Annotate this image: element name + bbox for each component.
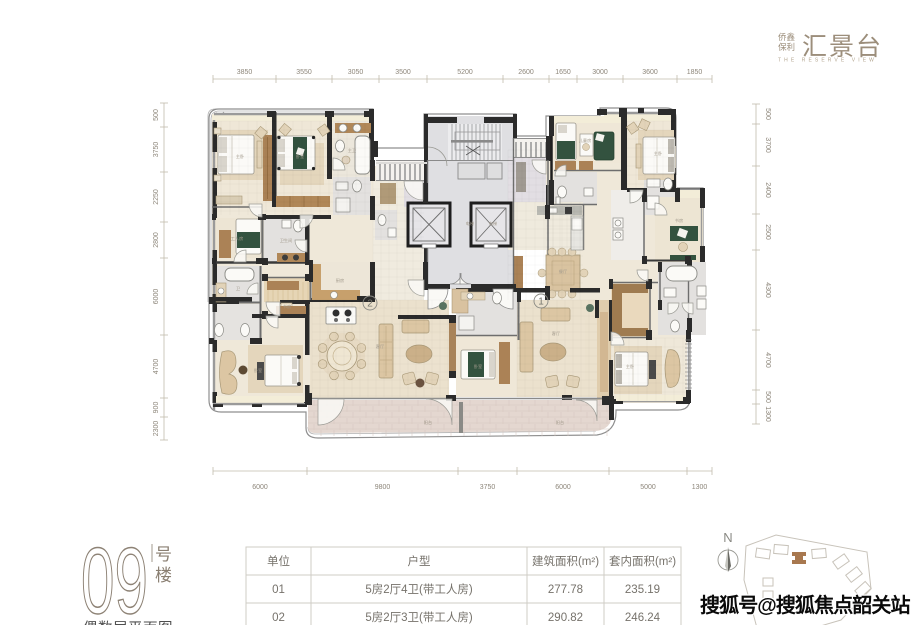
- svg-text:偶数层平面图: 偶数层平面图: [83, 620, 173, 625]
- svg-text:500: 500: [153, 109, 160, 121]
- svg-text:3500: 3500: [395, 69, 411, 76]
- svg-text:500: 500: [764, 391, 771, 403]
- svg-text:2400: 2400: [764, 182, 771, 198]
- svg-text:5200: 5200: [457, 69, 473, 76]
- svg-text:500: 500: [764, 108, 771, 120]
- svg-text:3850: 3850: [237, 69, 253, 76]
- svg-text:1300: 1300: [764, 406, 771, 422]
- svg-text:2600: 2600: [518, 69, 534, 76]
- svg-text:900: 900: [153, 402, 160, 414]
- svg-text:楼: 楼: [155, 566, 172, 585]
- svg-text:6000: 6000: [252, 484, 268, 491]
- svg-text:5000: 5000: [640, 484, 656, 491]
- svg-text:儿童房: 儿童房: [579, 137, 592, 144]
- svg-text:书房: 书房: [675, 217, 683, 224]
- svg-text:277.78: 277.78: [548, 584, 583, 596]
- svg-text:2800: 2800: [153, 232, 160, 248]
- svg-text:246.24: 246.24: [625, 612, 661, 624]
- svg-text:阳台: 阳台: [556, 419, 564, 426]
- svg-text:2: 2: [367, 299, 373, 310]
- svg-text:电梯: 电梯: [489, 220, 497, 227]
- svg-text:3700: 3700: [764, 137, 771, 153]
- svg-text:3550: 3550: [296, 69, 312, 76]
- svg-text:01: 01: [272, 584, 285, 596]
- svg-text:3600: 3600: [642, 69, 658, 76]
- svg-text:1300: 1300: [692, 484, 708, 491]
- svg-text:5房2厅4卫(带工人房): 5房2厅4卫(带工人房): [365, 583, 473, 596]
- svg-text:建筑面积(m²): 建筑面积(m²): [532, 554, 599, 568]
- svg-text:290.82: 290.82: [548, 612, 583, 624]
- svg-text:主卫: 主卫: [348, 147, 356, 153]
- svg-text:厨房: 厨房: [336, 277, 344, 284]
- svg-text:书房: 书房: [283, 303, 291, 310]
- svg-text:9800: 9800: [375, 484, 391, 491]
- svg-text:THE RESERVE VIEW: THE RESERVE VIEW: [778, 58, 877, 64]
- svg-text:主卧: 主卧: [626, 363, 634, 370]
- svg-text:号: 号: [155, 545, 172, 564]
- svg-text:卧室: 卧室: [254, 367, 262, 374]
- svg-text:N: N: [723, 530, 732, 545]
- svg-text:客厅: 客厅: [552, 330, 560, 337]
- svg-text:3000: 3000: [592, 69, 608, 76]
- svg-text:主卧: 主卧: [654, 150, 662, 157]
- svg-text:套内面积(m²): 套内面积(m²): [609, 554, 676, 568]
- svg-text:6000: 6000: [555, 484, 571, 491]
- svg-text:3750: 3750: [153, 142, 160, 158]
- svg-text:3050: 3050: [348, 69, 364, 76]
- svg-text:6000: 6000: [153, 289, 160, 305]
- svg-text:5房2厅3卫(带工人房): 5房2厅3卫(带工人房): [365, 611, 473, 624]
- svg-text:卫生间: 卫生间: [280, 237, 293, 244]
- svg-text:户型: 户型: [408, 554, 431, 568]
- svg-text:3750: 3750: [480, 484, 496, 491]
- svg-text:02: 02: [272, 612, 285, 624]
- svg-text:电梯: 电梯: [466, 220, 474, 227]
- svg-text:2300: 2300: [153, 421, 160, 437]
- svg-text:2500: 2500: [764, 224, 771, 240]
- svg-text:卫: 卫: [236, 286, 240, 291]
- svg-text:单位: 单位: [267, 554, 290, 568]
- svg-text:侨鑫: 侨鑫: [778, 32, 796, 42]
- svg-text:工人房: 工人房: [231, 235, 244, 242]
- svg-text:卧室: 卧室: [474, 363, 482, 370]
- svg-text:235.19: 235.19: [625, 584, 660, 596]
- svg-text:主卧: 主卧: [236, 153, 244, 160]
- svg-text:保利: 保利: [778, 42, 795, 52]
- svg-text:餐厅: 餐厅: [559, 268, 567, 275]
- svg-text:4700: 4700: [153, 359, 160, 375]
- svg-text:搜狐号@搜狐焦点韶关站: 搜狐号@搜狐焦点韶关站: [700, 593, 911, 617]
- svg-text:1650: 1650: [555, 69, 571, 76]
- svg-text:1: 1: [538, 297, 544, 308]
- svg-text:卧室: 卧室: [296, 153, 304, 160]
- svg-text:1850: 1850: [687, 69, 703, 76]
- svg-text:4700: 4700: [764, 352, 771, 368]
- svg-text:09: 09: [81, 528, 148, 625]
- svg-text:阳台: 阳台: [424, 419, 432, 426]
- svg-text:客厅: 客厅: [376, 343, 384, 350]
- svg-text:2250: 2250: [153, 189, 160, 205]
- svg-text:4300: 4300: [764, 282, 771, 298]
